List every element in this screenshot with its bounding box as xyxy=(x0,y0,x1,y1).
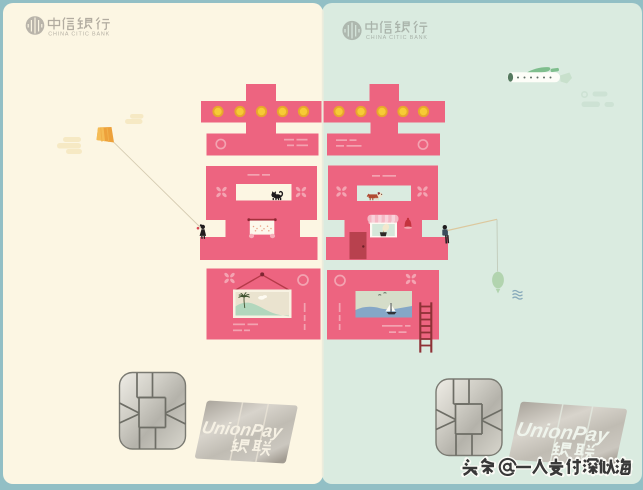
svg-text:CHINA CITIC BANK: CHINA CITIC BANK xyxy=(48,32,110,38)
svg-text:CHINA CITIC BANK: CHINA CITIC BANK xyxy=(366,35,428,41)
